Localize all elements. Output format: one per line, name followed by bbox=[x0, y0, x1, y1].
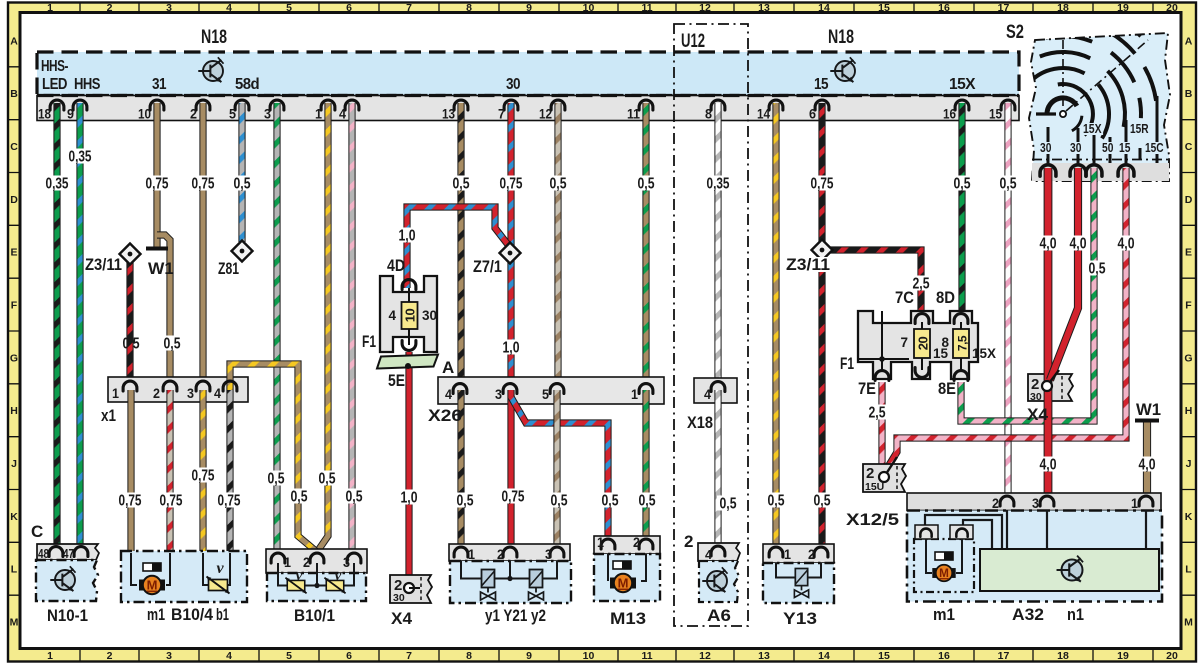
svg-text:0,35: 0,35 bbox=[46, 176, 69, 193]
svg-text:HHS-: HHS- bbox=[41, 58, 68, 75]
svg-text:19: 19 bbox=[1117, 2, 1129, 14]
svg-text:4,0: 4,0 bbox=[1070, 236, 1087, 253]
svg-text:10: 10 bbox=[583, 650, 595, 662]
svg-text:3: 3 bbox=[343, 555, 350, 570]
svg-text:B10/4: B10/4 bbox=[171, 605, 213, 624]
svg-text:0,35: 0,35 bbox=[707, 176, 730, 193]
svg-text:4,0: 4,0 bbox=[1040, 457, 1057, 474]
svg-text:F: F bbox=[1185, 300, 1192, 312]
svg-text:K: K bbox=[1185, 511, 1193, 523]
svg-text:0,5: 0,5 bbox=[453, 176, 470, 193]
svg-text:10: 10 bbox=[402, 309, 417, 323]
svg-text:0,5: 0,5 bbox=[319, 471, 336, 488]
svg-text:9: 9 bbox=[526, 2, 532, 14]
svg-text:0,5: 0,5 bbox=[346, 489, 363, 506]
svg-text:A: A bbox=[1185, 35, 1193, 47]
svg-text:15X: 15X bbox=[949, 76, 976, 93]
svg-text:9: 9 bbox=[67, 106, 74, 122]
svg-text:1: 1 bbox=[284, 555, 291, 570]
svg-text:ν: ν bbox=[216, 560, 224, 577]
svg-text:15: 15 bbox=[878, 2, 890, 14]
svg-text:3: 3 bbox=[264, 106, 271, 122]
svg-text:0,5: 0,5 bbox=[551, 493, 568, 510]
svg-text:2: 2 bbox=[866, 465, 874, 482]
svg-text:M: M bbox=[10, 617, 19, 629]
svg-text:X4: X4 bbox=[1027, 405, 1049, 424]
svg-text:16: 16 bbox=[943, 106, 956, 122]
svg-text:0,75: 0,75 bbox=[811, 176, 834, 193]
svg-text:1: 1 bbox=[47, 650, 53, 662]
svg-text:H: H bbox=[10, 405, 18, 417]
svg-text:15C: 15C bbox=[1145, 140, 1164, 155]
svg-text:48: 48 bbox=[38, 546, 49, 561]
svg-text:LED: LED bbox=[42, 76, 67, 93]
svg-text:15R: 15R bbox=[1130, 121, 1149, 136]
svg-text:4: 4 bbox=[214, 386, 221, 401]
svg-text:1: 1 bbox=[47, 2, 53, 14]
svg-text:J: J bbox=[1186, 458, 1192, 470]
svg-text:14: 14 bbox=[818, 2, 830, 14]
svg-text:7E: 7E bbox=[858, 379, 876, 398]
svg-text:15: 15 bbox=[989, 106, 1002, 122]
svg-text:C: C bbox=[31, 522, 43, 541]
svg-text:11: 11 bbox=[627, 106, 640, 122]
svg-text:20: 20 bbox=[1166, 2, 1178, 14]
svg-text:M13: M13 bbox=[610, 609, 646, 628]
svg-text:7C: 7C bbox=[895, 288, 914, 307]
svg-text:0,75: 0,75 bbox=[119, 493, 142, 510]
svg-text:Z7/1: Z7/1 bbox=[473, 257, 502, 276]
svg-text:17: 17 bbox=[998, 650, 1010, 662]
svg-text:2: 2 bbox=[107, 650, 113, 662]
svg-text:5: 5 bbox=[286, 650, 292, 662]
svg-text:0,5: 0,5 bbox=[550, 176, 567, 193]
svg-text:E: E bbox=[1185, 247, 1192, 259]
svg-text:Z3/11: Z3/11 bbox=[786, 255, 830, 274]
svg-text:4: 4 bbox=[339, 106, 346, 122]
svg-text:5: 5 bbox=[542, 387, 549, 402]
svg-text:47: 47 bbox=[63, 546, 74, 561]
svg-text:ν: ν bbox=[296, 568, 303, 584]
svg-text:H: H bbox=[1185, 405, 1193, 417]
svg-text:10: 10 bbox=[138, 106, 151, 122]
svg-text:20: 20 bbox=[1166, 650, 1178, 662]
svg-text:4: 4 bbox=[226, 2, 232, 14]
svg-text:30: 30 bbox=[506, 76, 520, 93]
svg-text:4: 4 bbox=[226, 650, 232, 662]
svg-text:A: A bbox=[10, 35, 18, 47]
svg-text:20: 20 bbox=[915, 337, 930, 351]
svg-text:7: 7 bbox=[498, 106, 505, 122]
svg-text:D: D bbox=[10, 194, 18, 206]
svg-text:F: F bbox=[11, 300, 18, 312]
svg-text:0,75: 0,75 bbox=[146, 176, 169, 193]
svg-text:F1: F1 bbox=[362, 332, 376, 351]
svg-text:3: 3 bbox=[495, 387, 502, 402]
svg-text:J: J bbox=[11, 458, 17, 470]
svg-text:0,5: 0,5 bbox=[268, 471, 285, 488]
svg-text:30: 30 bbox=[1030, 391, 1042, 403]
svg-text:1: 1 bbox=[784, 547, 791, 562]
svg-text:18: 18 bbox=[1057, 2, 1069, 14]
svg-text:0,5: 0,5 bbox=[602, 493, 619, 510]
svg-text:9: 9 bbox=[526, 650, 532, 662]
svg-text:30: 30 bbox=[1040, 140, 1051, 155]
svg-text:3: 3 bbox=[1032, 496, 1039, 511]
svg-text:12: 12 bbox=[699, 2, 711, 14]
svg-text:4: 4 bbox=[704, 387, 711, 402]
svg-text:5: 5 bbox=[229, 106, 236, 122]
svg-text:0,5: 0,5 bbox=[954, 176, 971, 193]
svg-text:C: C bbox=[1185, 141, 1193, 153]
svg-text:W1: W1 bbox=[1136, 400, 1161, 419]
svg-text:2: 2 bbox=[684, 532, 693, 551]
svg-text:6: 6 bbox=[809, 106, 816, 122]
svg-text:19: 19 bbox=[1117, 650, 1129, 662]
svg-text:18: 18 bbox=[38, 106, 51, 122]
svg-text:X4: X4 bbox=[391, 609, 413, 628]
svg-text:M: M bbox=[1184, 617, 1193, 629]
svg-text:n1: n1 bbox=[1067, 605, 1084, 624]
svg-text:18: 18 bbox=[1057, 650, 1069, 662]
svg-text:58d: 58d bbox=[235, 76, 259, 93]
svg-text:12: 12 bbox=[699, 650, 711, 662]
svg-text:D: D bbox=[1185, 194, 1193, 206]
svg-text:0,5: 0,5 bbox=[164, 336, 181, 353]
svg-text:y1 Y21 y2: y1 Y21 y2 bbox=[485, 606, 546, 625]
svg-text:2: 2 bbox=[992, 496, 999, 511]
svg-text:0,5: 0,5 bbox=[720, 496, 737, 513]
svg-text:2: 2 bbox=[497, 547, 504, 562]
svg-text:2: 2 bbox=[808, 547, 815, 562]
svg-text:0,5: 0,5 bbox=[639, 493, 656, 510]
svg-text:Y13: Y13 bbox=[783, 609, 817, 628]
svg-text:7: 7 bbox=[900, 335, 908, 350]
svg-text:16: 16 bbox=[938, 2, 950, 14]
svg-text:N18: N18 bbox=[828, 27, 854, 48]
svg-text:2: 2 bbox=[153, 386, 160, 401]
svg-text:K: K bbox=[10, 511, 18, 523]
svg-text:2: 2 bbox=[303, 555, 310, 570]
svg-text:2: 2 bbox=[633, 535, 640, 550]
svg-text:0,5: 0,5 bbox=[1089, 261, 1106, 278]
svg-text:8: 8 bbox=[705, 106, 712, 122]
svg-text:6: 6 bbox=[346, 2, 352, 14]
svg-text:0,75: 0,75 bbox=[218, 493, 241, 510]
svg-text:30: 30 bbox=[1070, 140, 1081, 155]
svg-text:E: E bbox=[10, 247, 17, 259]
svg-text:16: 16 bbox=[938, 650, 950, 662]
svg-text:31: 31 bbox=[152, 76, 167, 93]
svg-text:A: A bbox=[442, 358, 454, 377]
svg-text:13: 13 bbox=[758, 2, 770, 14]
svg-text:4: 4 bbox=[388, 308, 396, 323]
svg-text:30: 30 bbox=[422, 308, 437, 323]
svg-text:50: 50 bbox=[1102, 140, 1113, 155]
svg-text:7: 7 bbox=[406, 650, 412, 662]
svg-text:L: L bbox=[1185, 564, 1192, 576]
svg-text:8: 8 bbox=[466, 650, 472, 662]
svg-text:13: 13 bbox=[442, 106, 455, 122]
svg-text:N10-1: N10-1 bbox=[47, 606, 88, 625]
svg-text:X18: X18 bbox=[687, 413, 713, 432]
svg-text:14: 14 bbox=[757, 106, 770, 122]
svg-text:3: 3 bbox=[166, 2, 172, 14]
svg-text:5: 5 bbox=[286, 2, 292, 14]
svg-text:0,5: 0,5 bbox=[638, 176, 655, 193]
svg-text:13: 13 bbox=[758, 650, 770, 662]
svg-text:N18: N18 bbox=[201, 27, 227, 48]
svg-text:1,0: 1,0 bbox=[401, 490, 418, 507]
svg-text:4,0: 4,0 bbox=[1118, 236, 1135, 253]
svg-text:4: 4 bbox=[445, 387, 452, 402]
svg-text:0,75: 0,75 bbox=[160, 493, 183, 510]
svg-text:0,5: 0,5 bbox=[814, 493, 831, 510]
svg-text:B: B bbox=[10, 88, 18, 100]
svg-text:7: 7 bbox=[406, 2, 412, 14]
svg-text:4,0: 4,0 bbox=[1139, 457, 1156, 474]
svg-text:8: 8 bbox=[941, 335, 949, 350]
svg-text:B10/1: B10/1 bbox=[294, 606, 335, 625]
svg-text:A6: A6 bbox=[707, 606, 731, 625]
svg-text:12: 12 bbox=[539, 106, 552, 122]
svg-text:1,0: 1,0 bbox=[503, 340, 520, 357]
svg-text:15X: 15X bbox=[972, 346, 996, 361]
svg-text:0,75: 0,75 bbox=[192, 468, 215, 485]
svg-text:m1: m1 bbox=[147, 605, 165, 624]
svg-text:2: 2 bbox=[190, 106, 197, 122]
svg-text:X26: X26 bbox=[428, 406, 462, 425]
svg-text:30: 30 bbox=[393, 592, 405, 604]
svg-text:15: 15 bbox=[814, 76, 829, 93]
svg-text:15: 15 bbox=[1119, 140, 1130, 155]
svg-text:2: 2 bbox=[107, 2, 113, 14]
svg-text:1: 1 bbox=[1131, 496, 1138, 511]
svg-text:0,5: 0,5 bbox=[291, 489, 308, 506]
svg-text:S2: S2 bbox=[1006, 22, 1024, 43]
svg-text:B: B bbox=[1185, 88, 1193, 100]
svg-text:G: G bbox=[1184, 352, 1192, 364]
svg-text:0,5: 0,5 bbox=[234, 176, 251, 193]
svg-text:6: 6 bbox=[346, 650, 352, 662]
svg-text:4D: 4D bbox=[387, 256, 405, 275]
svg-text:x1: x1 bbox=[101, 406, 116, 425]
svg-text:1: 1 bbox=[597, 535, 604, 550]
svg-text:8D: 8D bbox=[936, 288, 955, 307]
svg-text:0,75: 0,75 bbox=[192, 176, 215, 193]
svg-text:L: L bbox=[11, 564, 18, 576]
svg-text:Z3/11: Z3/11 bbox=[85, 255, 122, 274]
svg-text:X12/5: X12/5 bbox=[846, 510, 899, 529]
svg-text:0,5: 0,5 bbox=[457, 493, 474, 510]
svg-text:7,5: 7,5 bbox=[955, 335, 969, 351]
svg-text:2,5: 2,5 bbox=[913, 276, 930, 293]
svg-text:U12: U12 bbox=[681, 31, 705, 52]
svg-text:0,75: 0,75 bbox=[500, 176, 523, 193]
svg-text:1: 1 bbox=[631, 387, 638, 402]
svg-text:1: 1 bbox=[112, 386, 119, 401]
svg-text:0,35: 0,35 bbox=[69, 149, 92, 166]
svg-text:3: 3 bbox=[187, 386, 194, 401]
svg-text:Z81: Z81 bbox=[218, 259, 239, 278]
svg-text:11: 11 bbox=[641, 650, 652, 662]
svg-text:5E: 5E bbox=[388, 371, 405, 390]
svg-text:15: 15 bbox=[878, 650, 890, 662]
svg-text:8: 8 bbox=[466, 2, 472, 14]
svg-text:C: C bbox=[10, 141, 18, 153]
svg-text:15X: 15X bbox=[1083, 121, 1102, 136]
svg-text:F1: F1 bbox=[840, 354, 854, 373]
svg-text:17: 17 bbox=[998, 2, 1010, 14]
svg-text:11: 11 bbox=[641, 2, 652, 14]
svg-text:1: 1 bbox=[315, 106, 322, 122]
svg-text:ν: ν bbox=[335, 568, 342, 584]
svg-text:HHS: HHS bbox=[74, 76, 100, 93]
svg-text:m1: m1 bbox=[933, 605, 955, 624]
svg-text:3: 3 bbox=[166, 650, 172, 662]
svg-text:14: 14 bbox=[818, 650, 830, 662]
svg-text:4,0: 4,0 bbox=[1040, 236, 1057, 253]
svg-text:b1: b1 bbox=[216, 605, 229, 624]
svg-text:W1: W1 bbox=[148, 259, 174, 278]
svg-text:2,5: 2,5 bbox=[869, 405, 886, 422]
svg-text:10: 10 bbox=[583, 2, 595, 14]
svg-text:3: 3 bbox=[545, 547, 552, 562]
svg-text:G: G bbox=[10, 352, 18, 364]
svg-text:A32: A32 bbox=[1012, 605, 1044, 624]
svg-text:8E: 8E bbox=[938, 379, 956, 398]
svg-text:0,75: 0,75 bbox=[502, 489, 525, 506]
svg-text:0,5: 0,5 bbox=[768, 493, 785, 510]
svg-text:0,5: 0,5 bbox=[1000, 176, 1017, 193]
svg-text:1,0: 1,0 bbox=[399, 228, 416, 245]
svg-text:15U: 15U bbox=[865, 481, 884, 493]
svg-text:1: 1 bbox=[468, 547, 475, 562]
